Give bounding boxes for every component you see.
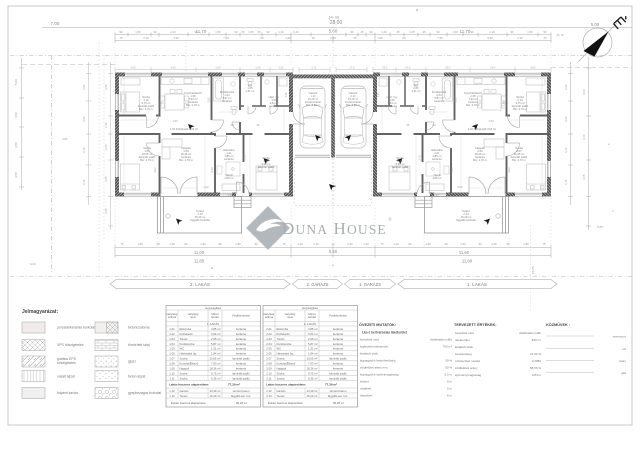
svg-text:90: 90 bbox=[436, 30, 440, 34]
svg-text:2,60: 2,60 bbox=[104, 144, 108, 150]
svg-text:4,30: 4,30 bbox=[582, 134, 586, 140]
svg-text:45: 45 bbox=[311, 36, 315, 40]
svg-text:3,33: 3,33 bbox=[210, 167, 214, 173]
svg-text:kialakult telek: kialakult telek bbox=[455, 345, 474, 349]
svg-text:Méretterület: Méretterület bbox=[211, 312, 219, 319]
svg-text:2. LAKÁS: 2. LAKÁS bbox=[190, 281, 210, 287]
svg-text:4,25: 4,25 bbox=[104, 84, 108, 90]
svg-text:telekterület: telekterület bbox=[455, 338, 470, 342]
svg-text:vasalt aljzat: vasalt aljzat bbox=[57, 375, 75, 379]
svg-text:1,46: 1,46 bbox=[491, 242, 497, 246]
svg-text:45: 45 bbox=[353, 36, 357, 40]
svg-text:6 m: 6 m bbox=[447, 394, 453, 398]
svg-text:3,02: 3,02 bbox=[507, 167, 511, 173]
svg-text:77,39 m²: 77,39 m² bbox=[325, 383, 337, 387]
svg-text:3,65: 3,65 bbox=[582, 174, 586, 180]
svg-text:4,50: 4,50 bbox=[14, 112, 18, 118]
svg-text:1,30: 1,30 bbox=[227, 193, 233, 197]
svg-text:1,50: 1,50 bbox=[135, 30, 141, 34]
svg-text:3,10: 3,10 bbox=[564, 147, 568, 153]
svg-text:előkert: előkert bbox=[360, 380, 369, 384]
svg-text:1,20: 1,20 bbox=[381, 30, 387, 34]
svg-text:2,80: 2,80 bbox=[564, 84, 568, 90]
svg-text:1,35: 1,35 bbox=[376, 92, 380, 98]
svg-text:Terasz1.1315,29 m²fagyálló bur: Terasz1.1315,29 m²fagyálló burkolat bbox=[190, 209, 210, 222]
svg-text:2,40: 2,40 bbox=[143, 36, 149, 40]
svg-text:58,56 %: 58,56 % bbox=[530, 366, 541, 370]
svg-text:2,73: 2,73 bbox=[243, 155, 247, 161]
svg-text:KÖZMŰVEK :: KÖZMŰVEK : bbox=[546, 322, 570, 327]
svg-text:1,80: 1,80 bbox=[523, 242, 529, 246]
svg-text:Lke-1 kertvárosias lakóterület: Lke-1 kertvárosias lakóterület bbox=[362, 331, 408, 335]
svg-text:75: 75 bbox=[543, 36, 547, 40]
svg-text:1,80: 1,80 bbox=[137, 242, 143, 246]
svg-text:1. GARÁZS: 1. GARÁZS bbox=[359, 282, 381, 287]
svg-text:90: 90 bbox=[218, 242, 222, 246]
svg-text:hőszigetelés: hőszigetelés bbox=[57, 361, 76, 365]
svg-text:1,40: 1,40 bbox=[363, 242, 369, 246]
svg-text:zöldfelület arány min.: zöldfelület arány min. bbox=[360, 366, 389, 370]
svg-text:1,50: 1,50 bbox=[452, 30, 458, 34]
svg-text:1. LAKÁS: 1. LAKÁS bbox=[467, 281, 487, 287]
svg-text:1,35: 1,35 bbox=[284, 92, 288, 98]
svg-text:áram: áram bbox=[619, 359, 626, 363]
svg-text:Épület hasznos alapterülete:: Épület hasznos alapterülete: bbox=[268, 400, 304, 405]
svg-text:Helyiséglista: Helyiséglista bbox=[302, 306, 318, 310]
svg-text:0,2980: 0,2980 bbox=[532, 359, 542, 363]
svg-text:Szoba2.0710,05 m²laminált padl: Szoba2.0710,05 m²laminált padlóBm: 2,70 … bbox=[511, 146, 528, 162]
svg-text:7,65: 7,65 bbox=[437, 36, 443, 40]
svg-text:3,22: 3,22 bbox=[502, 101, 506, 107]
svg-text:4,85 m²3,64 m²2,05 m²5,87 m²1,: 4,85 m²3,64 m²2,05 m²5,87 m²1,31 m²1,84 … bbox=[209, 327, 220, 381]
svg-text:90: 90 bbox=[119, 30, 123, 34]
svg-text:Garázs2.1213,49 m²simított bet: Garázs2.1213,49 m²simított betonBm: 2,55… bbox=[345, 91, 362, 107]
svg-text:tömörített talaj: tömörített talaj bbox=[128, 343, 150, 347]
svg-text:5,0 m: 5,0 m bbox=[444, 373, 452, 377]
svg-text:1,50: 1,50 bbox=[488, 119, 494, 123]
svg-text:Tároló2,05 m²: Tároló2,05 m² bbox=[224, 173, 233, 180]
svg-text:90: 90 bbox=[543, 30, 547, 34]
svg-text:Tároló2,05 m²: Tároló2,05 m² bbox=[432, 173, 441, 180]
svg-text:5,00: 5,00 bbox=[14, 79, 18, 85]
svg-text:beépítési mód: beépítési mód bbox=[455, 331, 474, 335]
svg-text:víz: víz bbox=[622, 347, 626, 351]
svg-text:1,80: 1,80 bbox=[425, 242, 431, 246]
svg-text:®: ® bbox=[388, 217, 392, 223]
svg-text:5,60: 5,60 bbox=[329, 29, 338, 34]
svg-text:45: 45 bbox=[257, 123, 260, 127]
svg-text:1,60: 1,60 bbox=[285, 36, 291, 40]
svg-text:1,80: 1,80 bbox=[104, 122, 108, 128]
svg-text:2,80: 2,80 bbox=[82, 84, 86, 90]
svg-text:beépítési mód: beépítési mód bbox=[360, 338, 379, 342]
svg-text:2,40: 2,40 bbox=[517, 36, 523, 40]
svg-text:90: 90 bbox=[444, 242, 448, 246]
svg-text:90: 90 bbox=[408, 242, 412, 246]
svg-text:1,50: 1,50 bbox=[527, 30, 533, 34]
svg-text:2,02: 2,02 bbox=[203, 185, 209, 189]
svg-text:Épület hasznos alapterülete:: Épület hasznos alapterülete: bbox=[171, 400, 207, 405]
svg-text:1,60: 1,60 bbox=[377, 36, 383, 40]
svg-text:oldalhatáron álló: oldalhatáron álló bbox=[430, 338, 452, 342]
svg-text:99,28 m²: 99,28 m² bbox=[333, 401, 344, 405]
svg-text:3,15: 3,15 bbox=[82, 179, 86, 185]
svg-text:75: 75 bbox=[119, 36, 123, 40]
svg-text:ÖVEZETI MUTATÓK:: ÖVEZETI MUTATÓK: bbox=[359, 322, 396, 327]
svg-text:TERVEZETT ÉRTÉKEK:: TERVEZETT ÉRTÉKEK: bbox=[454, 322, 497, 327]
svg-text:Konyha/étkező2.087,93 m²kerámi: Konyha/étkező2.087,93 m²kerámiaBm: 2,70 … bbox=[464, 91, 482, 107]
svg-text:2.122.13: 2.122.13 bbox=[266, 389, 272, 398]
svg-text:20, 70: 20, 70 bbox=[556, 33, 564, 37]
svg-text:GarázsTerasz: GarázsTerasz bbox=[277, 389, 287, 398]
svg-text:2,10: 2,10 bbox=[170, 30, 176, 34]
svg-text:45: 45 bbox=[257, 30, 261, 34]
svg-text:45: 45 bbox=[396, 30, 400, 34]
svg-text:1.121.13: 1.121.13 bbox=[169, 389, 175, 398]
svg-text:90: 90 bbox=[478, 242, 482, 246]
svg-text:szennyvíz: szennyvíz bbox=[613, 335, 627, 339]
svg-text:beton aljzat: beton aljzat bbox=[128, 375, 145, 379]
svg-text:WC1.051,31 m²: WC1.051,31 m² bbox=[245, 83, 254, 93]
svg-text:3,30: 3,30 bbox=[564, 116, 568, 122]
svg-text:2. LAKÁS: 2. LAKÁS bbox=[304, 322, 316, 326]
svg-text:(+/- m): (+/- m) bbox=[329, 16, 339, 20]
svg-text:gipsz: gipsz bbox=[128, 360, 136, 364]
svg-text:7,00: 7,00 bbox=[51, 21, 60, 26]
svg-text:Konyha/étkező1.087,93 m²kerámi: Konyha/étkező1.087,93 m²kerámiaBm: 2,70 … bbox=[184, 91, 202, 107]
svg-text:simított betonfagyálló ker. bu: simított betonfagyálló ker. bur. bbox=[328, 389, 349, 398]
svg-text:0,40: 0,40 bbox=[329, 249, 338, 254]
svg-text:Jelmagyarázat:: Jelmagyarázat: bbox=[22, 309, 58, 315]
svg-text:3,84 m: 3,84 m bbox=[532, 373, 542, 377]
svg-text:6,00: 6,00 bbox=[30, 262, 36, 266]
svg-text:gyephézagos burkolat: gyephézagos burkolat bbox=[128, 391, 161, 395]
svg-text:3,10: 3,10 bbox=[82, 147, 86, 153]
svg-text:45: 45 bbox=[360, 30, 364, 34]
svg-text:1,50: 1,50 bbox=[460, 242, 466, 246]
svg-text:Padlóburkolat: Padlóburkolat bbox=[329, 314, 346, 318]
svg-text:legnagyobb épületmagasság: legnagyobb épületmagasság bbox=[360, 373, 399, 377]
svg-text:7,65: 7,65 bbox=[223, 36, 229, 40]
svg-text:Lakás hasznos alapterülete:: Lakás hasznos alapterülete: bbox=[169, 383, 209, 387]
svg-text:építménymagasság: építménymagasság bbox=[455, 373, 482, 377]
svg-text:5 m: 5 m bbox=[447, 380, 453, 384]
svg-text:45: 45 bbox=[422, 30, 426, 34]
svg-text:50 %: 50 % bbox=[445, 366, 452, 370]
svg-text:90: 90 bbox=[194, 30, 198, 34]
svg-text:2.012.022.032.042.052.062.072.: 2.012.022.032.042.052.062.072.082.092.10… bbox=[266, 327, 272, 381]
svg-text:hátsókert: hátsókert bbox=[360, 394, 373, 398]
svg-text:oldalkert: oldalkert bbox=[360, 387, 372, 391]
svg-text:3,15: 3,15 bbox=[564, 179, 568, 185]
svg-text:5,85: 5,85 bbox=[597, 225, 603, 229]
svg-text:75: 75 bbox=[380, 242, 384, 246]
svg-text:90: 90 bbox=[350, 30, 354, 34]
svg-text:a: a bbox=[608, 142, 610, 146]
svg-text:Házt. hg.2.061,84 m²kerámia: Házt. hg.2.061,84 m²kerámia bbox=[387, 95, 398, 108]
svg-text:30 %: 30 % bbox=[445, 359, 452, 363]
svg-text:90: 90 bbox=[506, 242, 510, 246]
svg-text:Terasz2.1315,29 m²fagyálló bur: Terasz2.1315,29 m²fagyálló burkolat bbox=[456, 209, 476, 222]
svg-text:1.02 Közlekedő 3,64 m²: 1.02 Közlekedő 3,64 m² bbox=[170, 127, 198, 131]
svg-text:923 m²: 923 m² bbox=[532, 338, 541, 342]
svg-text:2,40: 2,40 bbox=[293, 30, 299, 34]
svg-text:4,81: 4,81 bbox=[62, 137, 68, 141]
svg-text:11,80: 11,80 bbox=[462, 259, 473, 264]
svg-text:1,80: 1,80 bbox=[235, 242, 241, 246]
svg-text:Nappali2.0918,36 m²kerámiaBm:: Nappali2.0918,36 m²kerámiaBm: 2,70 m bbox=[473, 146, 488, 162]
svg-text:Előszoba1.014,85 m²kerámia: Előszoba1.014,85 m²kerámia bbox=[223, 148, 235, 161]
svg-text:1.011.021.031.041.051.061.071.: 1.011.021.031.041.051.061.071.081.091.10… bbox=[169, 327, 175, 381]
svg-text:1,40: 1,40 bbox=[297, 242, 303, 246]
svg-text:90: 90 bbox=[470, 30, 474, 34]
svg-text:Méretterület: Méretterület bbox=[308, 312, 316, 319]
svg-text:11,70: 11,70 bbox=[460, 29, 471, 34]
svg-text:Házt. hg.1.061,84 m²kerámia: Házt. hg.1.061,84 m²kerámia bbox=[269, 95, 280, 108]
svg-text:4,50: 4,50 bbox=[14, 172, 18, 178]
svg-text:2,40: 2,40 bbox=[347, 242, 353, 246]
svg-text:75: 75 bbox=[282, 242, 286, 246]
svg-text:zöldfelületi arány: zöldfelületi arány bbox=[455, 366, 478, 370]
svg-text:2,62: 2,62 bbox=[207, 97, 211, 103]
svg-text:Nappali1.0918,36 m²kerámiaBm:: Nappali1.0918,36 m²kerámiaBm: 2,70 m bbox=[179, 146, 194, 162]
svg-text:90: 90 bbox=[254, 242, 258, 246]
svg-text:3,30: 3,30 bbox=[487, 36, 493, 40]
svg-text:77,39 m²: 77,39 m² bbox=[228, 383, 240, 387]
svg-text:90: 90 bbox=[234, 30, 238, 34]
svg-text:1,05: 1,05 bbox=[248, 30, 254, 34]
svg-text:Fürdőszoba1.045,87 m²kerámia: Fürdőszoba1.045,87 m²kerámia bbox=[220, 90, 235, 103]
svg-text:5 m: 5 m bbox=[447, 387, 453, 391]
svg-text:gáz: gáz bbox=[621, 371, 626, 375]
svg-text:1,50: 1,50 bbox=[200, 242, 206, 246]
svg-text:2,40: 2,40 bbox=[313, 242, 319, 246]
svg-text:2. GARÁZS: 2. GARÁZS bbox=[307, 282, 329, 287]
svg-text:3,22: 3,22 bbox=[159, 101, 163, 107]
svg-text:legkisebb telekterület: legkisebb telekterület bbox=[360, 345, 388, 349]
svg-text:90: 90 bbox=[369, 30, 373, 34]
svg-text:2,95: 2,95 bbox=[104, 208, 108, 214]
svg-text:Szoba1.119,36 m²laminált padló: Szoba1.119,36 m²laminált padló bbox=[258, 156, 275, 169]
svg-text:Lakás hasznos alapterülete:: Lakás hasznos alapterülete: bbox=[266, 383, 306, 387]
svg-text:1,50: 1,50 bbox=[215, 30, 221, 34]
svg-text:2,73: 2,73 bbox=[418, 155, 422, 161]
svg-text:2.02 Közlekedő 3,64 m²: 2.02 Közlekedő 3,64 m² bbox=[468, 127, 496, 131]
svg-text:45: 45 bbox=[241, 30, 245, 34]
svg-text:3,02: 3,02 bbox=[153, 167, 157, 173]
svg-text:3,33: 3,33 bbox=[450, 167, 454, 173]
svg-text:kialakult telek: kialakult telek bbox=[360, 352, 379, 356]
svg-text:90: 90 bbox=[153, 30, 157, 34]
svg-text:1. LAKÁS: 1. LAKÁS bbox=[207, 322, 219, 326]
svg-text:90: 90 bbox=[510, 30, 514, 34]
svg-text:porcelánkerámia burkolat: porcelánkerámia burkolat bbox=[57, 326, 95, 330]
svg-text:15,00: 15,00 bbox=[531, 266, 535, 274]
svg-text:24,90 %: 24,90 % bbox=[530, 352, 541, 356]
svg-text:DUNA HOUSE: DUNA HOUSE bbox=[282, 219, 387, 238]
svg-text:1,05: 1,05 bbox=[409, 30, 415, 34]
svg-text:700 m²: 700 m² bbox=[443, 345, 452, 349]
svg-text:ó: ó bbox=[612, 209, 614, 213]
svg-text:3,30: 3,30 bbox=[173, 36, 179, 40]
svg-text:1,50: 1,50 bbox=[172, 119, 178, 123]
svg-text:Szoba2.119,36 m²laminált padló: Szoba2.119,36 m²laminált padló bbox=[392, 156, 409, 169]
svg-text:75: 75 bbox=[542, 242, 546, 246]
svg-text:11,00: 11,00 bbox=[194, 250, 205, 255]
svg-text:folyami kavics: folyami kavics bbox=[57, 391, 78, 395]
svg-text:60: 60 bbox=[402, 36, 406, 40]
svg-text:90: 90 bbox=[266, 30, 270, 34]
svg-text:28,00: 28,00 bbox=[330, 20, 343, 26]
svg-text:Szoba1.109,75 m²laminált padló: Szoba1.109,75 m²laminált padlóBm: 2,70 m bbox=[138, 95, 155, 111]
svg-text:3,30: 3,30 bbox=[82, 116, 86, 122]
svg-text:beépítettség: beépítettség bbox=[455, 352, 472, 356]
svg-text:90: 90 bbox=[433, 123, 436, 127]
svg-text:3,65: 3,65 bbox=[104, 176, 108, 182]
svg-text:75: 75 bbox=[120, 242, 124, 246]
svg-text:13,49 m²15,29 m²: 13,49 m²15,29 m² bbox=[306, 389, 317, 398]
svg-text:1,46: 1,46 bbox=[169, 242, 175, 246]
svg-text:99,28 m²: 99,28 m² bbox=[236, 401, 247, 405]
svg-text:1,20: 1,20 bbox=[278, 30, 284, 34]
svg-text:legnagyobb beépíthetőség: legnagyobb beépíthetőség bbox=[360, 359, 396, 363]
svg-text:á: á bbox=[416, 8, 418, 12]
svg-text:2,02: 2,02 bbox=[457, 185, 463, 189]
svg-text:1,30: 1,30 bbox=[433, 193, 439, 197]
svg-text:Helyiséglista: Helyiséglista bbox=[205, 306, 221, 310]
svg-text:XPS hőszigetelés: XPS hőszigetelés bbox=[57, 343, 84, 347]
svg-text:ó: ó bbox=[332, 263, 334, 267]
svg-text:Előszoba2.014,85 m²kerámia: Előszoba2.014,85 m²kerámia bbox=[431, 148, 443, 161]
svg-text:betoncsatorna: betoncsatorna bbox=[128, 326, 150, 330]
svg-text:11,80: 11,80 bbox=[194, 259, 205, 264]
svg-text:45: 45 bbox=[407, 123, 410, 127]
svg-text:90: 90 bbox=[184, 242, 188, 246]
svg-text:4,85 m²3,64 m²2,05 m²5,87 m²1,: 4,85 m²3,64 m²2,05 m²5,87 m²1,31 m²1,84 … bbox=[306, 327, 317, 381]
svg-text:Padlóburkolat: Padlóburkolat bbox=[232, 314, 249, 318]
svg-text:oldalhatáron álló: oldalhatáron álló bbox=[519, 331, 541, 335]
svg-text:2,62: 2,62 bbox=[454, 97, 458, 103]
svg-text:WC2.051,31 m²: WC2.051,31 m² bbox=[411, 83, 420, 93]
svg-text:Garázs1.1213,49 m²simított bet: Garázs1.1213,49 m²simított betonBm: 2,55… bbox=[305, 91, 322, 107]
svg-text:1,20: 1,20 bbox=[393, 242, 399, 246]
svg-text:13,49 m²15,29 m²: 13,49 m²15,29 m² bbox=[209, 389, 220, 398]
svg-text:szintterületi mutató: szintterületi mutató bbox=[455, 359, 481, 363]
svg-text:5,00: 5,00 bbox=[591, 22, 600, 27]
svg-text:ló: ló bbox=[211, 266, 214, 270]
svg-text:60: 60 bbox=[260, 36, 264, 40]
svg-text:simított betonfagyálló ker. bu: simított betonfagyálló ker. bur. bbox=[231, 389, 252, 398]
svg-text:4,50: 4,50 bbox=[14, 142, 18, 148]
svg-text:GarázsTerasz: GarázsTerasz bbox=[180, 389, 190, 398]
svg-text:4,00: 4,00 bbox=[582, 89, 586, 95]
svg-text:11,60: 11,60 bbox=[459, 250, 470, 255]
svg-text:2,10: 2,10 bbox=[489, 30, 495, 34]
